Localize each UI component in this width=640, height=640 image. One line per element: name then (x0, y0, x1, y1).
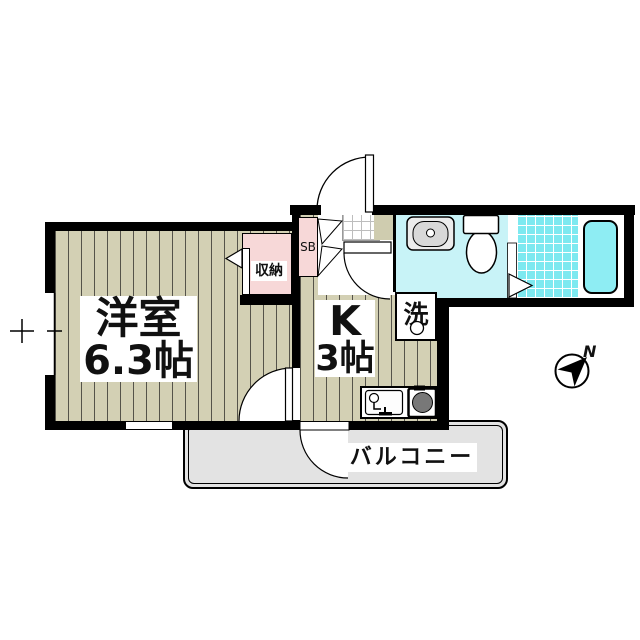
bath-tiles (517, 215, 578, 298)
entry-door-leaf (366, 155, 374, 212)
western-room-area: 6.3帖 (83, 341, 194, 381)
bathtub (583, 220, 618, 294)
wall (624, 205, 634, 307)
wall (437, 298, 449, 430)
bath-door-strip (508, 243, 517, 298)
bottom-window (125, 421, 173, 430)
compass-needle-icon (558, 357, 588, 387)
wall (393, 214, 396, 292)
wall (45, 222, 300, 231)
kitchen-name: K (329, 301, 361, 342)
entry-door-arc (317, 157, 370, 210)
wall (45, 222, 55, 293)
wall (437, 298, 634, 307)
western-room-label: 洋室 6.3帖 (80, 296, 197, 382)
entry-door-opening (321, 205, 372, 215)
kitchen-counter (360, 386, 437, 419)
entry-counter (374, 214, 394, 240)
wall (292, 421, 449, 430)
shoe-box-label: SB (297, 240, 319, 254)
washroom (395, 214, 508, 298)
western-room-name: 洋室 (96, 298, 182, 341)
closet-label: 収納 (251, 261, 287, 281)
closet-door-strip (242, 248, 250, 295)
north-label: N (583, 342, 596, 361)
kitchen-label: K 3帖 (315, 300, 375, 377)
laundry-label: 洗 (397, 295, 435, 331)
balcony-label: バルコニー (347, 443, 477, 472)
wall (240, 295, 292, 305)
kitchen-area: 3帖 (315, 342, 374, 377)
floorplan: 洗 SB 収納 洋室 6.3帖 K 3帖 バルコニー N (0, 0, 640, 640)
